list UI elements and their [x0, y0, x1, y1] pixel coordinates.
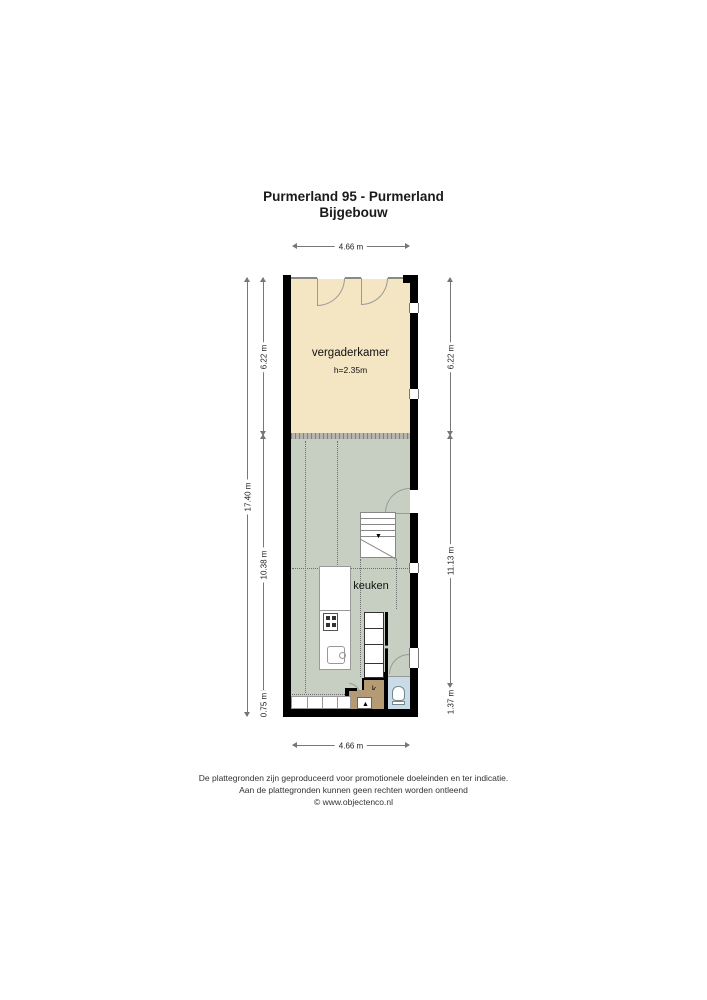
- stair-break-line: [361, 539, 397, 560]
- dimension-left-total-label: 17.40 m: [243, 480, 252, 515]
- toilet-base-icon: [392, 701, 405, 705]
- sink-icon: [327, 646, 345, 664]
- page-title: Purmerland 95 - Purmerland: [0, 189, 707, 204]
- vergaderkamer-label: vergaderkamer: [291, 347, 410, 359]
- dimension-bottom: 4.66 m: [293, 745, 409, 746]
- wall-right-seg4: [410, 513, 418, 563]
- footer-copyright: © www.objectenco.nl: [0, 797, 707, 807]
- dimension-top: 4.66 m: [293, 246, 409, 247]
- wall-toilet-top: [388, 676, 410, 677]
- window: [409, 563, 419, 573]
- stairs-down-arrow-icon: ▼: [375, 533, 382, 540]
- footer-disclaimer-line1: De plattegronden zijn geproduceerd voor …: [0, 773, 707, 783]
- dimension-right-seg2-label: 11.13 m: [446, 544, 455, 578]
- toilet-icon: [392, 686, 405, 701]
- dimension-left-seg2-label: 10.38 m: [259, 547, 268, 582]
- wall-right-seg3: [410, 399, 418, 490]
- floorplan: ▼ k: [283, 275, 418, 717]
- wall-right-seg1: [410, 275, 418, 303]
- headroom-dashed-line: [292, 568, 410, 569]
- wall-right-seg5: [410, 573, 418, 648]
- dimension-right-seg2: 11.13 m: [450, 435, 451, 687]
- headroom-dashed-line: [337, 441, 338, 567]
- floorplan-page: Purmerland 95 - Purmerland Bijgebouw 4.6…: [0, 0, 707, 1000]
- wall-right-seg6: [410, 668, 418, 717]
- dimension-left-seg3: 0.75 m: [263, 694, 264, 716]
- dimension-left-total: 17.40 m: [247, 278, 248, 716]
- dimension-right-seg3: 1.37 m: [450, 687, 451, 716]
- dimension-right-seg1: 6.22 m: [450, 278, 451, 435]
- wall-interior: [385, 612, 388, 640]
- footer-disclaimer-line2: Aan de plattegronden kunnen geen rechten…: [0, 785, 707, 795]
- headroom-dashed-line: [360, 559, 361, 677]
- door-leaf: [317, 278, 318, 306]
- dimension-left-seg2: 10.38 m: [263, 435, 264, 694]
- staircase: ▼: [360, 512, 396, 558]
- entrance-door: ▲: [357, 697, 372, 709]
- dimension-left-seg1-label: 6.22 m: [259, 341, 268, 371]
- wall-toilet-left: [384, 672, 388, 709]
- wall-right-seg2: [410, 313, 418, 389]
- wall-left: [283, 275, 291, 717]
- window: [409, 303, 419, 313]
- cabinet-row: [291, 696, 351, 709]
- vergaderkamer-height-note: h=2.35m: [291, 365, 410, 375]
- keuken-label: keuken: [331, 580, 411, 592]
- headroom-dashed-line: [305, 441, 306, 693]
- wall-bottom: [283, 709, 418, 717]
- door-leaf: [361, 278, 362, 305]
- headroom-dashed-line: [292, 694, 345, 695]
- entrance-arrow-icon: ▲: [362, 701, 369, 708]
- island-divider: [320, 610, 350, 611]
- wall-interior-dashed: [385, 640, 388, 654]
- dimension-top-label: 4.66 m: [335, 242, 367, 251]
- window: [409, 389, 419, 399]
- room-divider-strip: [291, 433, 410, 439]
- dimension-right-seg1-label: 6.22 m: [446, 341, 455, 371]
- dimension-left-seg1: 6.22 m: [263, 278, 264, 435]
- page-subtitle: Bijgebouw: [0, 205, 707, 220]
- dimension-left-seg3-label: 0.75 m: [259, 690, 268, 720]
- dimension-right-seg3-label: 1.37 m: [446, 686, 455, 716]
- dimension-bottom-label: 4.66 m: [335, 741, 367, 750]
- stove-icon: [323, 613, 338, 631]
- window: [409, 648, 419, 668]
- kitchen-counter: [364, 612, 384, 678]
